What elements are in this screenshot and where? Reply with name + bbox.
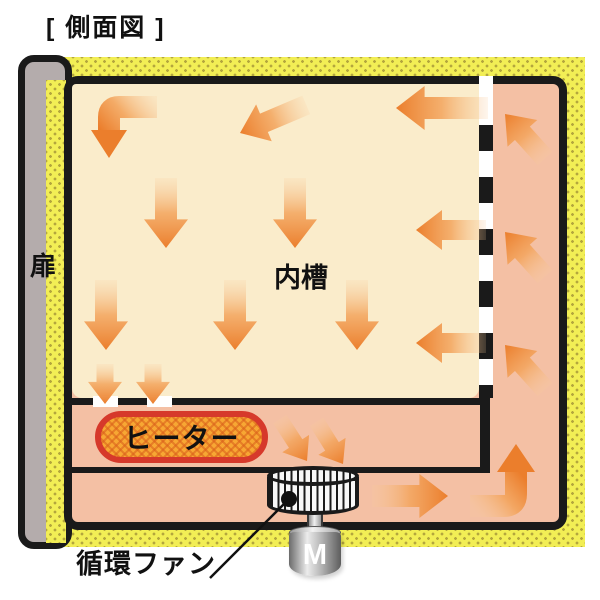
chamber-bottom-wall-segment <box>172 398 480 405</box>
inner-chamber-label: 内槽 <box>256 263 346 294</box>
partition-dash <box>479 229 493 255</box>
perforated-partition <box>479 76 493 398</box>
partition-dash <box>479 125 493 151</box>
duct-wall <box>480 398 490 473</box>
fan-label: 循環ファン <box>76 549 216 580</box>
vent-opening <box>147 396 172 407</box>
circulation-fan-top <box>267 466 359 486</box>
door-label: 扉 <box>30 252 56 282</box>
partition-dash <box>479 385 493 398</box>
door-insulation-strip <box>46 80 66 543</box>
partition-dash <box>479 177 493 203</box>
diagram-oven-side-view: [ 側面図 ] 扉 ヒーター 内槽 M 循環ファン <box>0 0 600 600</box>
inner-chamber-area <box>72 84 479 398</box>
motor-label: M <box>303 539 327 572</box>
chamber-bottom-wall-segment <box>118 398 147 405</box>
chamber-bottom-wall-segment <box>72 398 93 405</box>
motor: M <box>289 532 341 576</box>
partition-dash <box>479 333 493 359</box>
vent-opening <box>93 396 118 407</box>
heater-label: ヒーター <box>123 417 239 457</box>
diagram-title: [ 側面図 ] <box>46 14 166 43</box>
heater: ヒーター <box>95 411 268 463</box>
partition-dash <box>479 281 493 307</box>
